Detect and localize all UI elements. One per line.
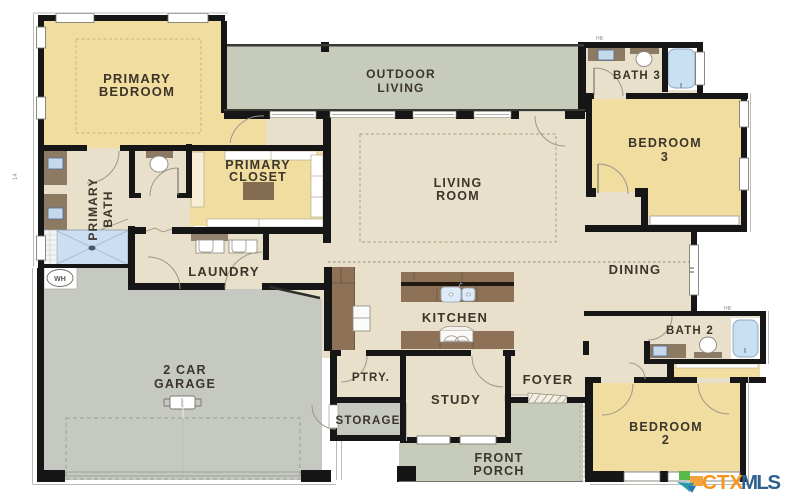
svg-text:CLOSET: CLOSET bbox=[229, 170, 287, 184]
svg-text:ROOM: ROOM bbox=[436, 189, 480, 203]
svg-text:WH: WH bbox=[54, 276, 66, 283]
svg-text:DINING: DINING bbox=[609, 262, 662, 277]
svg-text:BEDROOM: BEDROOM bbox=[628, 136, 702, 150]
svg-text:MLS: MLS bbox=[741, 471, 781, 494]
svg-text:OUTDOOR: OUTDOOR bbox=[366, 67, 436, 81]
svg-text:BEDROOM: BEDROOM bbox=[99, 84, 175, 99]
svg-text:STORAGE: STORAGE bbox=[335, 415, 400, 427]
svg-text:FRONT: FRONT bbox=[474, 451, 523, 465]
svg-text:LAUNDRY: LAUNDRY bbox=[188, 264, 259, 279]
svg-text:PRIMARY: PRIMARY bbox=[86, 177, 100, 240]
svg-text:PTRY.: PTRY. bbox=[352, 372, 390, 384]
svg-text:FOYER: FOYER bbox=[523, 372, 574, 387]
svg-text:CTX: CTX bbox=[702, 471, 743, 494]
svg-text:BATH 2: BATH 2 bbox=[666, 325, 714, 337]
svg-text:BATH: BATH bbox=[101, 190, 115, 227]
svg-text:LIVING: LIVING bbox=[377, 81, 424, 95]
svg-text:BEDROOM: BEDROOM bbox=[629, 420, 703, 434]
svg-text:GARAGE: GARAGE bbox=[154, 377, 216, 391]
svg-text:PORCH: PORCH bbox=[473, 464, 524, 478]
svg-text:HB: HB bbox=[724, 306, 732, 312]
svg-text:STUDY: STUDY bbox=[431, 392, 481, 407]
svg-text:KITCHEN: KITCHEN bbox=[422, 310, 488, 325]
svg-text:BATH 3: BATH 3 bbox=[613, 70, 661, 82]
svg-text:14: 14 bbox=[13, 173, 19, 180]
svg-text:3: 3 bbox=[661, 150, 669, 164]
svg-text:LIVING: LIVING bbox=[434, 176, 483, 190]
svg-text:2 CAR: 2 CAR bbox=[163, 363, 207, 377]
svg-text:HB: HB bbox=[596, 36, 604, 42]
svg-text:2: 2 bbox=[662, 433, 670, 447]
